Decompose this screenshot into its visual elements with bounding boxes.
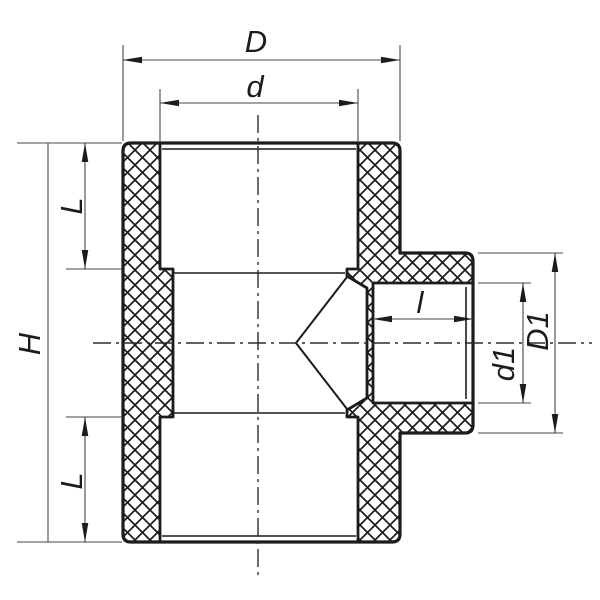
drawing-background xyxy=(0,0,600,600)
dim-label-D: D xyxy=(245,24,267,59)
dim-label-L-top: L xyxy=(54,197,89,214)
dim-label-L-bottom: L xyxy=(54,472,89,489)
dim-label-D1: D1 xyxy=(520,311,555,351)
dim-label-d: d xyxy=(246,69,265,104)
drawing-canvas: D d H L L l d1 D1 xyxy=(0,0,600,600)
dim-label-d1: d1 xyxy=(486,347,521,381)
dim-label-l: l xyxy=(417,285,425,320)
tee-fitting-technical-drawing: D d H L L l d1 D1 xyxy=(0,0,600,600)
dim-label-H: H xyxy=(12,332,47,355)
